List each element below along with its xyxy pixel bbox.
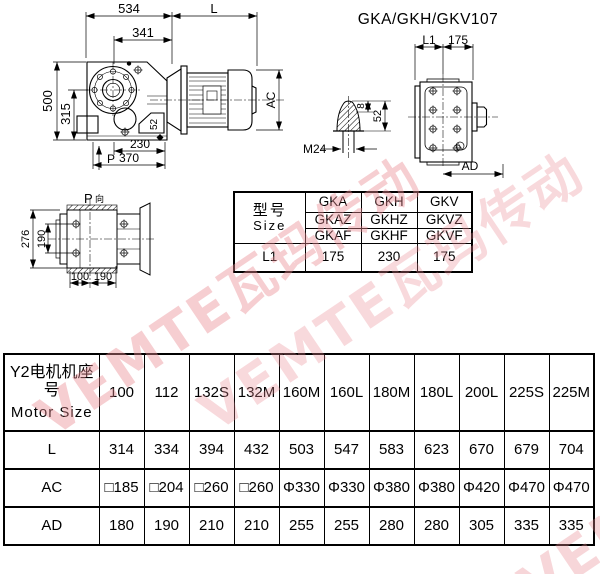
size-cell: GKAZ — [305, 212, 361, 228]
motor-col-header: 200L — [459, 354, 504, 431]
motor-col-header: 225S — [504, 354, 549, 431]
table-cell: 704 — [549, 431, 594, 469]
table-cell: 305 — [459, 507, 504, 545]
datasheet-page: 534 L 341 500 315 52 230 370 P AC GKA/GK… — [0, 0, 600, 574]
motor-col-header: 112 — [144, 354, 189, 431]
dim-190-bottom: 190 — [94, 271, 112, 283]
page-title: GKA/GKH/GKV107 — [358, 11, 499, 28]
motor-col-header: 160L — [324, 354, 369, 431]
size-cell: GKH — [361, 192, 417, 212]
table-cell: 335 — [549, 507, 594, 545]
table-cell: □260 — [189, 469, 234, 507]
dim-100: 100 — [71, 271, 89, 283]
size-row-label-l1: L1 — [234, 243, 305, 272]
dim-190-side: 190 — [36, 230, 48, 248]
motor-col-header: 180L — [414, 354, 459, 431]
p-view-label: P — [84, 191, 93, 206]
size-cell: GKAF — [305, 228, 361, 243]
motor-col-header: 132M — [234, 354, 279, 431]
table-cell: 255 — [324, 507, 369, 545]
technical-drawing: 534 L 341 500 315 52 230 370 P AC GKA/GK… — [0, 0, 600, 350]
motor-row-label-L: L — [4, 431, 99, 469]
motor-col-header: 100 — [99, 354, 144, 431]
table-cell: □204 — [144, 469, 189, 507]
size-cell: GKVF — [417, 228, 472, 243]
dim-315: 315 — [58, 103, 73, 125]
motor-row-label-AC: AC — [4, 469, 99, 507]
size-cell: 175 — [305, 243, 361, 272]
table-cell: Φ380 — [369, 469, 414, 507]
dim-341: 341 — [132, 25, 154, 40]
dim-370: 370 — [119, 151, 139, 165]
size-cell: GKVZ — [417, 212, 472, 228]
table-cell: □260 — [234, 469, 279, 507]
table-cell: 432 — [234, 431, 279, 469]
table-cell: Φ330 — [279, 469, 324, 507]
size-header-zh: 型号 — [235, 203, 305, 219]
table-cell: Φ330 — [324, 469, 369, 507]
size-cell: 175 — [417, 243, 472, 272]
table-cell: 623 — [414, 431, 459, 469]
dim-230: 230 — [130, 137, 150, 151]
dim-P: P — [107, 152, 115, 166]
dim-52-shaft: 52 — [372, 110, 384, 122]
gearbox-side-view — [408, 74, 498, 168]
table-cell: Φ470 — [504, 469, 549, 507]
size-header-en: Size — [235, 219, 305, 233]
table-cell: 180 — [99, 507, 144, 545]
dim-M24: M24 — [303, 142, 327, 156]
table-cell: 583 — [369, 431, 414, 469]
table-cell: Φ420 — [459, 469, 504, 507]
motor-header-zh: Y2电机机座号 — [5, 364, 99, 401]
motor-col-header: 160M — [279, 354, 324, 431]
motor-row-label-AD: AD — [4, 507, 99, 545]
size-cell: GKHF — [361, 228, 417, 243]
size-cell: GKHZ — [361, 212, 417, 228]
motor-header-en: Motor Size — [5, 404, 99, 421]
dim-534: 534 — [118, 1, 140, 16]
motor-col-header: 132S — [189, 354, 234, 431]
size-table-header: 型号 Size — [234, 192, 305, 243]
table-cell: 255 — [279, 507, 324, 545]
size-table: 型号 Size GKA GKH GKV GKAZ GKHZ GKVZ GKAF … — [233, 191, 473, 273]
table-cell: 190 — [144, 507, 189, 545]
table-cell: 547 — [324, 431, 369, 469]
table-cell: 394 — [189, 431, 234, 469]
p-view-label-xiang: 向 — [95, 193, 104, 204]
motor-size-table: Y2电机机座号 Motor Size 100 112 132S 132M 160… — [3, 353, 595, 546]
motor-col-header: 180M — [369, 354, 414, 431]
table-cell: 334 — [144, 431, 189, 469]
dim-AD: AD — [462, 159, 479, 173]
dim-8: 8 — [356, 103, 367, 109]
dim-52-front: 52 — [149, 118, 160, 130]
size-cell: GKV — [417, 192, 472, 212]
table-cell: 335 — [504, 507, 549, 545]
table-cell: 210 — [234, 507, 279, 545]
table-cell: 280 — [369, 507, 414, 545]
dim-500: 500 — [40, 90, 55, 112]
dim-L1: L1 — [422, 33, 436, 47]
table-cell: Φ380 — [414, 469, 459, 507]
front-view-dim-labels: 534 L 341 500 315 52 230 370 P AC — [40, 1, 278, 166]
dim-AC: AC — [264, 91, 278, 108]
motor-table-header: Y2电机机座号 Motor Size — [4, 354, 99, 431]
table-cell: Φ470 — [549, 469, 594, 507]
table-cell: 679 — [504, 431, 549, 469]
size-cell: GKA — [305, 192, 361, 212]
side-view-dimensions — [415, 44, 503, 178]
dim-276: 276 — [20, 230, 32, 248]
dim-175: 175 — [448, 33, 468, 47]
table-cell: 670 — [459, 431, 504, 469]
table-cell: 280 — [414, 507, 459, 545]
size-cell: 230 — [361, 243, 417, 272]
table-cell: 314 — [99, 431, 144, 469]
table-cell: □185 — [99, 469, 144, 507]
dim-L: L — [210, 1, 217, 16]
table-cell: 503 — [279, 431, 324, 469]
table-cell: 210 — [189, 507, 234, 545]
motor-col-header: 225M — [549, 354, 594, 431]
side-view-dim-labels: L1 175 AD — [422, 33, 478, 173]
